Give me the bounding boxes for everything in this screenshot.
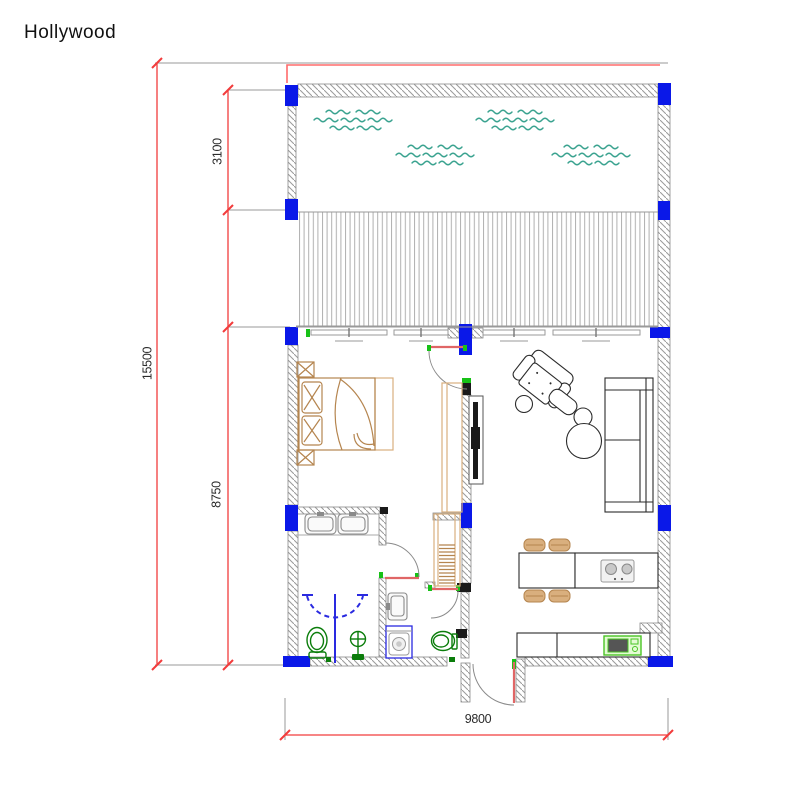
nightstand: [297, 450, 314, 465]
window-segment: [483, 328, 545, 341]
wall-vestibule-left: [461, 663, 470, 702]
wall-stub-left: [448, 328, 459, 338]
living-room-furniture: [510, 345, 653, 512]
door-entry: [473, 662, 514, 705]
dim-label-living-depth: 8750: [210, 465, 225, 525]
wall-pool-left: [288, 106, 296, 199]
window-segment: [311, 328, 387, 341]
door-wc: [431, 589, 458, 618]
kitchen-dining: [517, 539, 658, 657]
dining-stool: [549, 590, 570, 602]
wall-top: [298, 84, 658, 97]
shower-mixer: [351, 632, 366, 661]
floor-plan-canvas: Hollywood 15500 3100 8750 9800: [0, 0, 800, 800]
double-bed: [298, 376, 393, 452]
dim-label-total-width: 9800: [448, 712, 508, 727]
wall-bathroom-top: [296, 507, 380, 514]
kitchen-sink-unit: [604, 636, 641, 655]
wall-counter-return: [640, 623, 662, 633]
dining-stool: [524, 590, 545, 602]
wall-bathroom-side-lower: [379, 578, 386, 657]
wall-left-lower: [288, 531, 298, 657]
wall-vestibule-right: [516, 659, 525, 702]
cooktop: [601, 560, 634, 582]
dining-table: [519, 553, 575, 588]
wall-partition-lower: [461, 592, 469, 658]
plan-title: Hollywood: [24, 22, 116, 44]
door-bathroom: [385, 543, 419, 578]
wall-bottom-right: [525, 657, 648, 666]
side-table: [516, 396, 533, 413]
staircase: [434, 514, 460, 586]
dim-label-pool-depth: 3100: [211, 122, 226, 182]
dim-label-total-height: 15500: [141, 334, 156, 394]
wall-bathroom-side-upper: [379, 513, 386, 545]
dining-stool: [524, 539, 545, 551]
wall-partition-mid: [462, 528, 471, 583]
coffee-table: [567, 424, 602, 459]
window-segment: [553, 328, 640, 341]
wall-right: [658, 84, 670, 657]
blanket-fold: [335, 378, 342, 450]
wardrobe: [442, 383, 462, 512]
wall-stub-right: [472, 328, 483, 338]
nightstand: [297, 362, 314, 377]
bathroom-sink: [338, 512, 368, 534]
bathroom-sink: [305, 512, 336, 534]
washing-machine: [386, 626, 412, 658]
bedroom-furniture: [297, 362, 483, 512]
window-segment: [394, 328, 448, 341]
washbasin: [386, 593, 407, 620]
deck-boards: [296, 212, 658, 326]
roof-outline: [287, 65, 660, 83]
tv-unit: [469, 396, 483, 484]
dining-stool: [549, 539, 570, 551]
sofa: [605, 378, 653, 512]
pool-water-symbols: [314, 110, 630, 165]
floor-plan-drawing: [0, 0, 800, 800]
